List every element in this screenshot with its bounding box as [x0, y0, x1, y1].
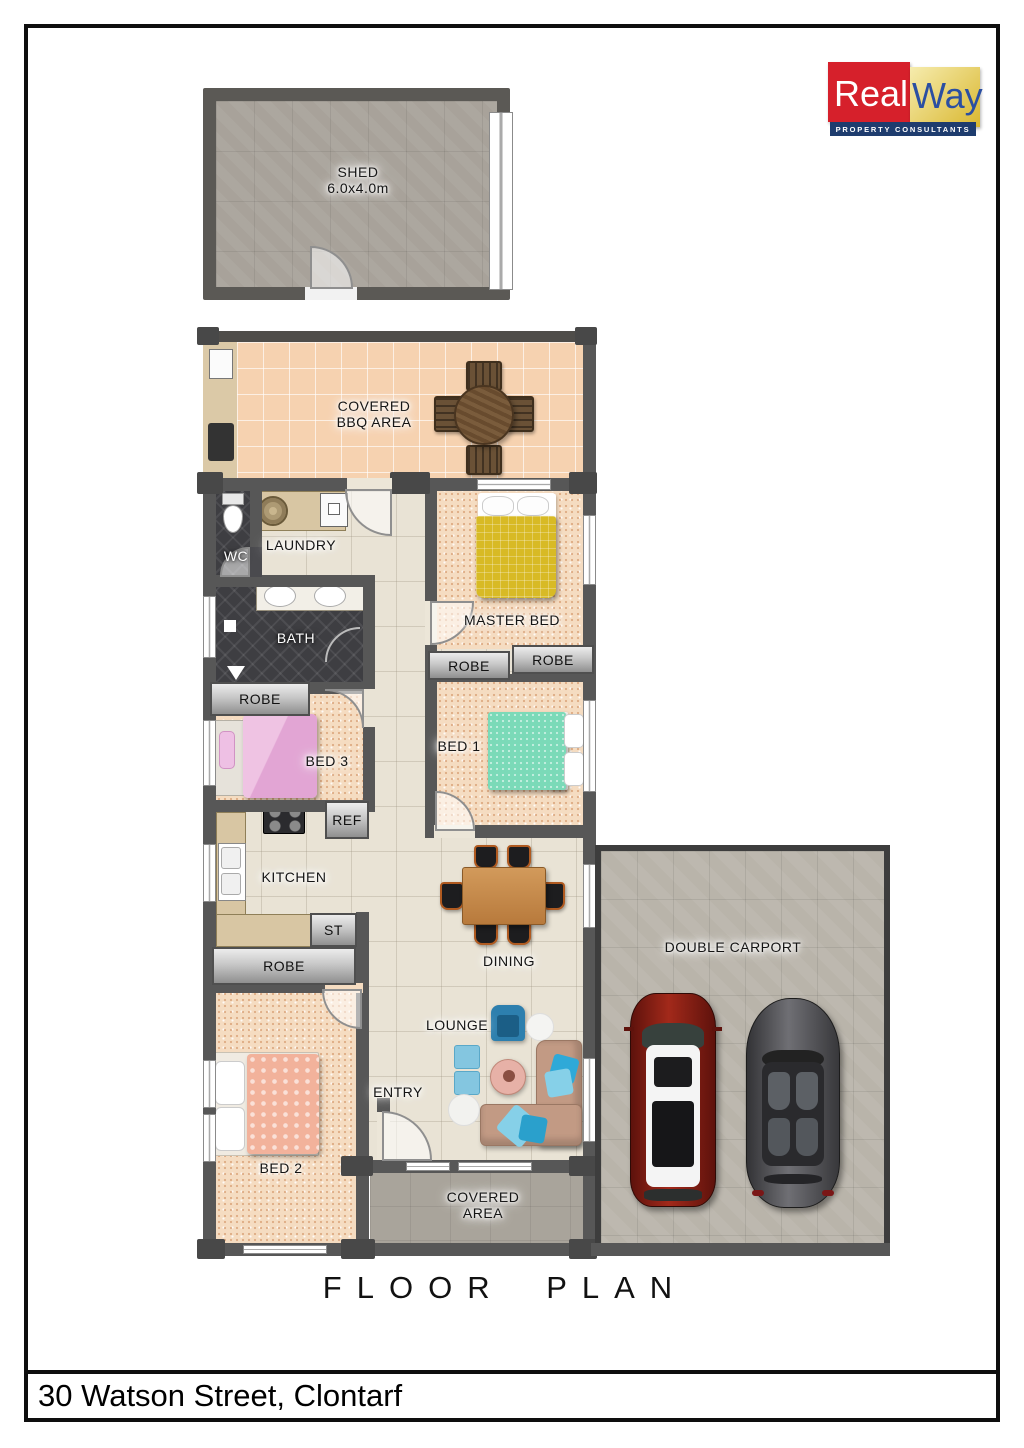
page-border-frame — [24, 24, 1000, 1422]
address-bar: 30 Watson Street, Clontarf — [24, 1370, 1000, 1422]
property-address: 30 Watson Street, Clontarf — [38, 1378, 402, 1414]
floor-plan-canvas: ROBE ROBE ROBE REF ST ROBE — [0, 0, 1024, 1448]
